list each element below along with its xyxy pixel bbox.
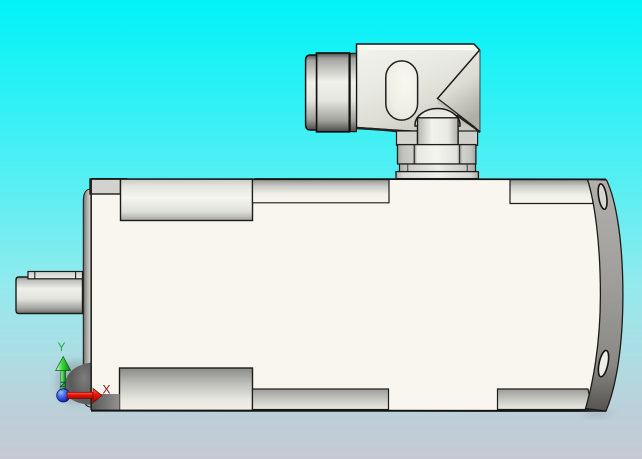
svg-text:X: X xyxy=(103,383,111,397)
svg-text:Y: Y xyxy=(58,340,66,354)
